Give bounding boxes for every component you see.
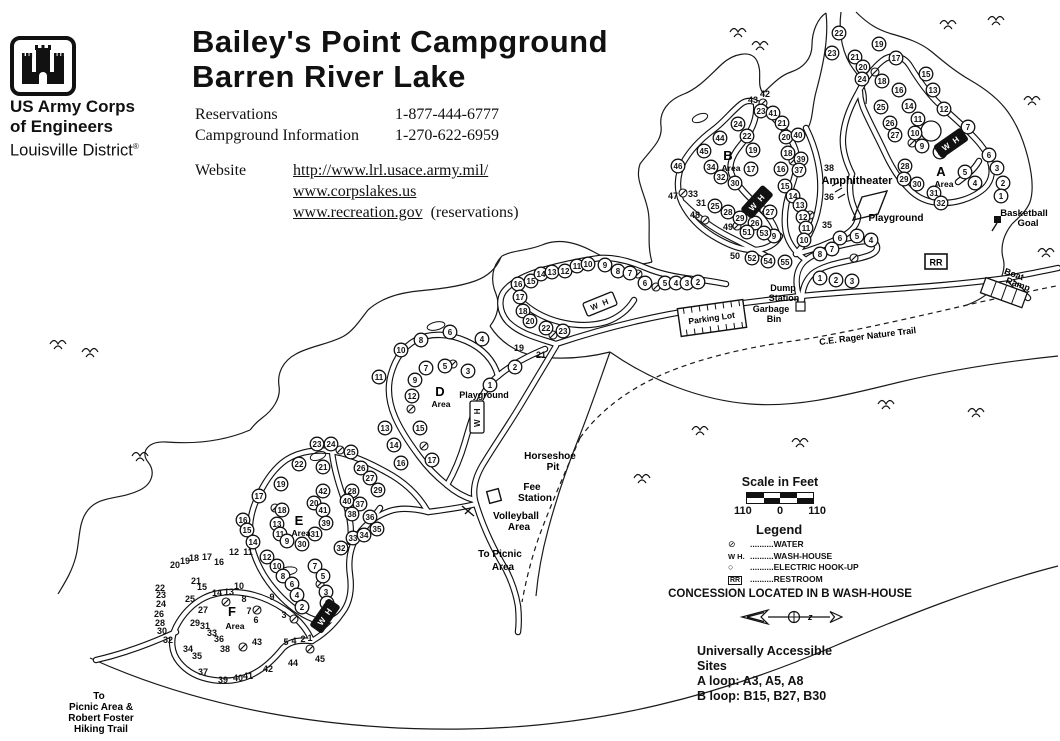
svg-text:42: 42 <box>319 487 328 496</box>
site-marker-B10: 10 <box>797 233 811 247</box>
svg-text:25: 25 <box>711 202 720 211</box>
area-label-D: D <box>435 384 444 399</box>
site-marker-A3: 3 <box>990 161 1004 175</box>
agency-line2: of Engineers <box>10 117 139 137</box>
site-marker-A16: 16 <box>892 83 906 97</box>
site-marker-D5: 5 <box>438 359 452 373</box>
svg-text:4: 4 <box>674 279 679 288</box>
water-ripple-icon <box>82 349 98 358</box>
map-label: Station <box>769 293 800 303</box>
map-label: Area <box>508 522 531 533</box>
site-number-F9: 9 <box>269 592 274 602</box>
site-marker-C22: 22 <box>539 321 553 335</box>
map-label: Station <box>518 493 552 504</box>
svg-text:17: 17 <box>747 165 756 174</box>
svg-text:3: 3 <box>995 164 1000 173</box>
svg-text:29: 29 <box>374 486 383 495</box>
svg-text:21: 21 <box>851 53 860 62</box>
svg-text:32: 32 <box>937 199 946 208</box>
restroom-icon: RR <box>728 574 750 587</box>
svg-text:10: 10 <box>584 260 593 269</box>
site-number-F15: 15 <box>197 582 207 592</box>
site-marker-B40: 40 <box>791 128 805 142</box>
map-label: C.E. Rager Nature Trail <box>819 325 917 347</box>
site-marker-B46: 46 <box>671 159 685 173</box>
water-tap-icon <box>850 254 858 262</box>
site-marker-D16: 16 <box>394 456 408 470</box>
svg-text:39: 39 <box>322 519 331 528</box>
svg-text:45: 45 <box>700 147 709 156</box>
svg-text:23: 23 <box>313 440 322 449</box>
svg-text:23: 23 <box>559 327 568 336</box>
site-marker-D7: 7 <box>419 361 433 375</box>
svg-text:8: 8 <box>419 336 424 345</box>
site-number-B48: 48 <box>690 210 700 220</box>
svg-text:6: 6 <box>290 580 295 589</box>
svg-text:4: 4 <box>480 335 485 344</box>
area-label-F: F <box>228 604 236 619</box>
svg-text:1: 1 <box>488 381 493 390</box>
site-marker-B23: 23 <box>754 104 768 118</box>
map-label: Playground <box>868 213 923 224</box>
site-marker-E34: 34 <box>357 528 371 542</box>
site-marker-B11: 11 <box>799 221 813 235</box>
svg-text:12: 12 <box>799 213 808 222</box>
water-ripple-icon <box>1038 249 1054 258</box>
svg-text:15: 15 <box>527 277 536 286</box>
site-number-F10: 10 <box>234 581 244 591</box>
site-number-F6: 6 <box>253 615 258 625</box>
site-marker-A23: 23 <box>825 46 839 60</box>
svg-text:40: 40 <box>343 497 352 506</box>
map-label: To <box>93 691 104 702</box>
svg-text:14: 14 <box>249 538 258 547</box>
svg-text:7: 7 <box>424 364 429 373</box>
svg-text:6: 6 <box>987 151 992 160</box>
site-marker-B51: 51 <box>740 225 754 239</box>
site-number-F35: 35 <box>192 651 202 661</box>
site-number-B31: 31 <box>696 198 706 208</box>
svg-text:2: 2 <box>513 363 518 372</box>
svg-text:12: 12 <box>561 267 570 276</box>
site-number-C19: 19 <box>514 343 524 353</box>
svg-text:34: 34 <box>360 531 369 540</box>
svg-text:9: 9 <box>772 232 777 241</box>
water-ripple-icon <box>988 17 1004 26</box>
site-marker-A10: 10 <box>908 126 922 140</box>
svg-text:21: 21 <box>778 119 787 128</box>
site-marker-A30: 30 <box>910 177 924 191</box>
site-number-F37: 37 <box>198 667 208 677</box>
site-marker-A25: 25 <box>874 100 888 114</box>
map-label: Horseshoe <box>524 451 576 462</box>
svg-text:3: 3 <box>685 279 690 288</box>
area-label-E: E <box>295 513 304 528</box>
map-label: Pit <box>547 462 560 473</box>
svg-text:21: 21 <box>319 463 328 472</box>
svg-text:Area: Area <box>226 621 245 631</box>
svg-text:11: 11 <box>914 115 923 124</box>
site-marker-A6: 6 <box>982 148 996 162</box>
svg-text:24: 24 <box>734 120 743 129</box>
svg-text:9: 9 <box>285 537 290 546</box>
svg-text:13: 13 <box>796 201 805 210</box>
svg-text:Area: Area <box>722 163 741 173</box>
site-number-F16: 16 <box>214 557 224 567</box>
accessible-a-loop: A loop: A3, A5, A8 <box>697 674 832 689</box>
site-marker-D12: 12 <box>405 389 419 403</box>
svg-text:2: 2 <box>1001 179 1006 188</box>
site-marker-A5: 5 <box>958 165 972 179</box>
svg-text:37: 37 <box>795 166 804 175</box>
svg-text:41: 41 <box>319 506 328 515</box>
site-marker-D10: 10 <box>394 343 408 357</box>
site-number-F11: 11 <box>243 547 253 557</box>
svg-text:14: 14 <box>905 102 914 111</box>
svg-text:19: 19 <box>875 40 884 49</box>
water-tap-icon <box>679 189 687 197</box>
site-number-F14: 14 <box>212 588 222 598</box>
site-number-F5: 5 <box>283 637 288 647</box>
water-ripple-icon <box>878 401 894 410</box>
svg-text:46: 46 <box>674 162 683 171</box>
site-marker-A11: 11 <box>911 112 925 126</box>
site-number-F8: 8 <box>241 594 246 604</box>
site-marker-A28: 28 <box>898 159 912 173</box>
scale-block: Scale in Feet 1100110 <box>718 475 842 517</box>
site-marker-A1: 1 <box>994 189 1008 203</box>
site-marker-B44: 44 <box>713 131 727 145</box>
svg-text:20: 20 <box>782 133 791 142</box>
svg-text:2: 2 <box>696 278 701 287</box>
water-ripple-icon <box>1024 97 1040 106</box>
site-marker-B55: 55 <box>778 255 792 269</box>
site-marker-A9: 9 <box>915 139 929 153</box>
link-recreation[interactable]: www.recreation.gov <box>293 204 423 221</box>
svg-text:22: 22 <box>743 132 752 141</box>
accessible-b-loop: B loop: B15, B27, B30 <box>697 689 832 704</box>
agency-line1: US Army Corps <box>10 97 139 117</box>
svg-text:23: 23 <box>828 49 837 58</box>
svg-text:54: 54 <box>764 257 773 266</box>
reservations-phone: 1-877-444-6777 <box>395 104 499 125</box>
svg-text:3: 3 <box>324 588 329 597</box>
fee-station-icon <box>487 489 502 504</box>
site-number-F41: 41 <box>243 671 253 681</box>
svg-text:9: 9 <box>920 142 925 151</box>
site-marker-C6: 6 <box>638 276 652 290</box>
site-marker-E38: 38 <box>345 507 359 521</box>
svg-text:26: 26 <box>357 464 366 473</box>
site-marker-C23: 23 <box>556 324 570 338</box>
legend-item-restroom: RR..........RESTROOM <box>728 574 888 587</box>
site-marker-A13: 13 <box>926 83 940 97</box>
scale-ticks: 1100110 <box>734 505 826 517</box>
svg-text:17: 17 <box>892 54 901 63</box>
water-tap-icon <box>239 643 247 651</box>
site-marker-B25: 25 <box>708 199 722 213</box>
map-label: Robert Foster <box>68 713 134 724</box>
svg-text:10: 10 <box>800 236 809 245</box>
site-number-F44: 44 <box>288 658 298 668</box>
water-tap-icon <box>290 615 298 623</box>
svg-text:4: 4 <box>295 591 300 600</box>
usace-castle-logo <box>10 36 76 96</box>
svg-text:38: 38 <box>348 510 357 519</box>
svg-text:20: 20 <box>526 317 535 326</box>
svg-text:15: 15 <box>922 70 931 79</box>
site-marker-A15: 15 <box>919 67 933 81</box>
wash-house-icon: W H <box>583 292 618 317</box>
svg-text:16: 16 <box>514 280 523 289</box>
svg-text:Area: Area <box>292 528 311 538</box>
site-marker-B17: 17 <box>744 162 758 176</box>
svg-text:36: 36 <box>366 513 375 522</box>
site-marker-D14: 14 <box>387 438 401 452</box>
svg-text:10: 10 <box>397 346 406 355</box>
site-number-F29: 29 <box>190 618 200 628</box>
site-number-F4: 4 <box>291 636 296 646</box>
svg-text:12: 12 <box>408 392 417 401</box>
svg-text:15: 15 <box>781 182 790 191</box>
site-marker-A18: 18 <box>875 74 889 88</box>
registered-mark: ® <box>133 142 139 151</box>
svg-text:30: 30 <box>298 540 307 549</box>
svg-text:5: 5 <box>663 279 668 288</box>
site-marker-D13: 13 <box>378 421 392 435</box>
svg-text:3: 3 <box>466 367 471 376</box>
svg-text:17: 17 <box>516 293 525 302</box>
map-label: Bin <box>767 314 782 324</box>
svg-text:9: 9 <box>603 261 608 270</box>
site-marker-E2: 2 <box>295 600 309 614</box>
site-number-F27: 27 <box>198 605 208 615</box>
site-number-F12: 12 <box>229 547 239 557</box>
svg-text:39: 39 <box>797 155 806 164</box>
svg-text:19: 19 <box>277 480 286 489</box>
site-number-F1: 1 <box>307 633 312 643</box>
svg-text:18: 18 <box>784 149 793 158</box>
site-marker-A14: 14 <box>902 99 916 113</box>
site-marker-E39: 39 <box>319 516 333 530</box>
site-marker-E22: 22 <box>292 457 306 471</box>
site-marker-E35: 35 <box>370 522 384 536</box>
water-tap-icon <box>701 216 709 224</box>
website-block: Website http://www.lrl.usace.army.mil/ w… <box>195 160 519 223</box>
svg-text:4: 4 <box>973 179 978 188</box>
accessible-sites-note: Universally Accessible Sites A loop: A3,… <box>697 644 832 704</box>
svg-text:27: 27 <box>366 474 375 483</box>
legend-item-washhouse: W H...........WASH-HOUSE <box>728 551 888 563</box>
svg-text:5: 5 <box>963 168 968 177</box>
svg-text:52: 52 <box>748 254 757 263</box>
site-number-F25: 25 <box>185 594 195 604</box>
svg-text:16: 16 <box>397 459 406 468</box>
svg-text:16: 16 <box>895 86 904 95</box>
site-number-F24: 24 <box>156 599 166 609</box>
site-marker-E24: 24 <box>324 437 338 451</box>
site-marker-E21: 21 <box>316 460 330 474</box>
water-ripple-icon <box>634 475 650 484</box>
site-number-F36: 36 <box>214 634 224 644</box>
site-marker-C13: 13 <box>545 265 559 279</box>
svg-text:31: 31 <box>311 530 320 539</box>
site-number-B38: 38 <box>824 163 834 173</box>
scale-bar <box>746 492 814 504</box>
svg-text:RR: RR <box>930 258 943 268</box>
site-marker-E23: 23 <box>310 437 324 451</box>
svg-text:1: 1 <box>999 192 1004 201</box>
site-number-C21: 21 <box>536 350 546 360</box>
svg-text:7: 7 <box>966 123 971 132</box>
water-ripple-icon <box>940 21 956 30</box>
washhouse-icon: W H. <box>728 551 750 563</box>
reservations-row: Reservations 1-877-444-6777 <box>195 104 499 125</box>
site-marker-D8: 8 <box>414 333 428 347</box>
map-label: Dump <box>770 283 796 293</box>
area-label-A: A <box>936 164 946 179</box>
site-marker-B54: 54 <box>761 254 775 268</box>
svg-text:10: 10 <box>911 129 920 138</box>
svg-text:30: 30 <box>731 179 740 188</box>
title-line2: Barren River Lake <box>192 59 608 94</box>
site-marker-E5: 5 <box>316 569 330 583</box>
site-marker-B18: 18 <box>781 146 795 160</box>
svg-text:13: 13 <box>548 268 557 277</box>
accessible-title: Universally Accessible <box>697 644 832 659</box>
svg-text:Area: Area <box>935 179 954 189</box>
svg-text:8: 8 <box>281 572 286 581</box>
water-tap-icon <box>420 442 428 450</box>
website-links: http://www.lrl.usace.army.mil/ www.corps… <box>293 160 519 223</box>
site-number-F43: 43 <box>252 637 262 647</box>
site-number-B49: 49 <box>723 222 733 232</box>
site-number-F38: 38 <box>220 644 230 654</box>
site-number-F3: 3 <box>281 610 286 620</box>
site-marker-B30: 30 <box>728 176 742 190</box>
svg-text:5: 5 <box>855 232 860 241</box>
site-number-F39: 39 <box>218 675 228 685</box>
svg-text:6: 6 <box>448 328 453 337</box>
svg-text:28: 28 <box>724 208 733 217</box>
water-ripple-icon <box>692 427 708 436</box>
svg-text:5: 5 <box>321 572 326 581</box>
site-marker-E17: 17 <box>252 489 266 503</box>
scale-title: Scale in Feet <box>718 475 842 489</box>
site-marker-E36: 36 <box>363 510 377 524</box>
map-label: Goal <box>1017 218 1038 229</box>
site-number-F17: 17 <box>202 552 212 562</box>
site-marker-B16: 16 <box>774 162 788 176</box>
site-marker-B13: 13 <box>793 198 807 212</box>
svg-text:44: 44 <box>716 134 725 143</box>
site-marker-C7: 7 <box>623 266 637 280</box>
svg-text:18: 18 <box>278 506 287 515</box>
water-ripple-icon <box>752 42 768 51</box>
svg-text:24: 24 <box>327 440 336 449</box>
electric-hookup-icon: ○ <box>728 562 750 574</box>
svg-text:19: 19 <box>749 146 758 155</box>
svg-text:40: 40 <box>794 131 803 140</box>
site-number-F18: 18 <box>189 553 199 563</box>
site-marker-D2: 2 <box>508 360 522 374</box>
svg-text:25: 25 <box>347 448 356 457</box>
site-marker-B21: 21 <box>775 116 789 130</box>
site-marker-D3: 3 <box>461 364 475 378</box>
svg-text:9: 9 <box>413 376 418 385</box>
information-label: Campground Information <box>195 125 395 146</box>
water-tap-icon <box>407 405 415 413</box>
site-marker-B19: 19 <box>746 143 760 157</box>
site-marker-D9: 9 <box>408 373 422 387</box>
svg-text:8: 8 <box>616 267 621 276</box>
site-marker-B8: 8 <box>813 247 827 261</box>
svg-text:34: 34 <box>707 163 716 172</box>
link-usace[interactable]: http://www.lrl.usace.army.mil/ <box>293 162 488 179</box>
site-marker-C16: 16 <box>511 277 525 291</box>
concession-note: CONCESSION LOCATED IN B WASH-HOUSE <box>640 588 940 600</box>
site-marker-A32: 32 <box>934 196 948 210</box>
site-marker-B52: 52 <box>745 251 759 265</box>
svg-text:11: 11 <box>573 262 582 271</box>
site-marker-B45: 45 <box>697 144 711 158</box>
svg-text:22: 22 <box>295 460 304 469</box>
contact-info: Reservations 1-877-444-6777 Campground I… <box>195 104 499 146</box>
wash-house-icon: W H <box>470 401 484 433</box>
link-corpslakes[interactable]: www.corpslakes.us <box>293 183 416 200</box>
water-ripple-icon <box>730 29 746 38</box>
site-marker-B4: 4 <box>864 233 878 247</box>
website-label: Website <box>195 160 293 223</box>
svg-text:17: 17 <box>255 492 264 501</box>
site-number-F2: 2 <box>300 634 305 644</box>
title-line1: Bailey's Point Campground <box>192 24 608 59</box>
svg-text:12: 12 <box>940 105 949 114</box>
legend-item-electric: ○..........ELECTRIC HOOK-UP <box>728 562 888 574</box>
site-number-B43: 43 <box>748 95 758 105</box>
site-marker-C8: 8 <box>611 264 625 278</box>
site-marker-B22: 22 <box>740 129 754 143</box>
svg-text:41: 41 <box>769 109 778 118</box>
site-marker-A29: 29 <box>897 172 911 186</box>
site-number-B42: 42 <box>760 89 770 99</box>
site-marker-B5: 5 <box>850 229 864 243</box>
svg-text:18: 18 <box>878 77 887 86</box>
svg-text:32: 32 <box>337 544 346 553</box>
svg-text:6: 6 <box>643 279 648 288</box>
site-marker-B1: 1 <box>813 271 827 285</box>
agency-name: US Army Corps of Engineers Louisville Di… <box>10 97 139 161</box>
site-marker-B24: 24 <box>731 117 745 131</box>
legend-title: Legend <box>756 522 888 537</box>
site-marker-C2: 2 <box>691 275 705 289</box>
site-marker-E29: 29 <box>371 483 385 497</box>
restroom-rr-box: RR <box>925 254 947 269</box>
site-marker-C20: 20 <box>523 314 537 328</box>
svg-text:2: 2 <box>300 603 305 612</box>
information-row: Campground Information 1-270-622-6959 <box>195 125 499 146</box>
site-number-F42: 42 <box>263 664 273 674</box>
site-marker-D6: 6 <box>443 325 457 339</box>
site-marker-B27: 27 <box>763 205 777 219</box>
svg-text:27: 27 <box>891 131 900 140</box>
svg-text:22: 22 <box>542 324 551 333</box>
svg-text:35: 35 <box>373 525 382 534</box>
water-tap-icon <box>306 645 314 653</box>
site-marker-B53: 53 <box>757 226 771 240</box>
site-number-B47: 47 <box>668 191 678 201</box>
svg-text:53: 53 <box>760 229 769 238</box>
